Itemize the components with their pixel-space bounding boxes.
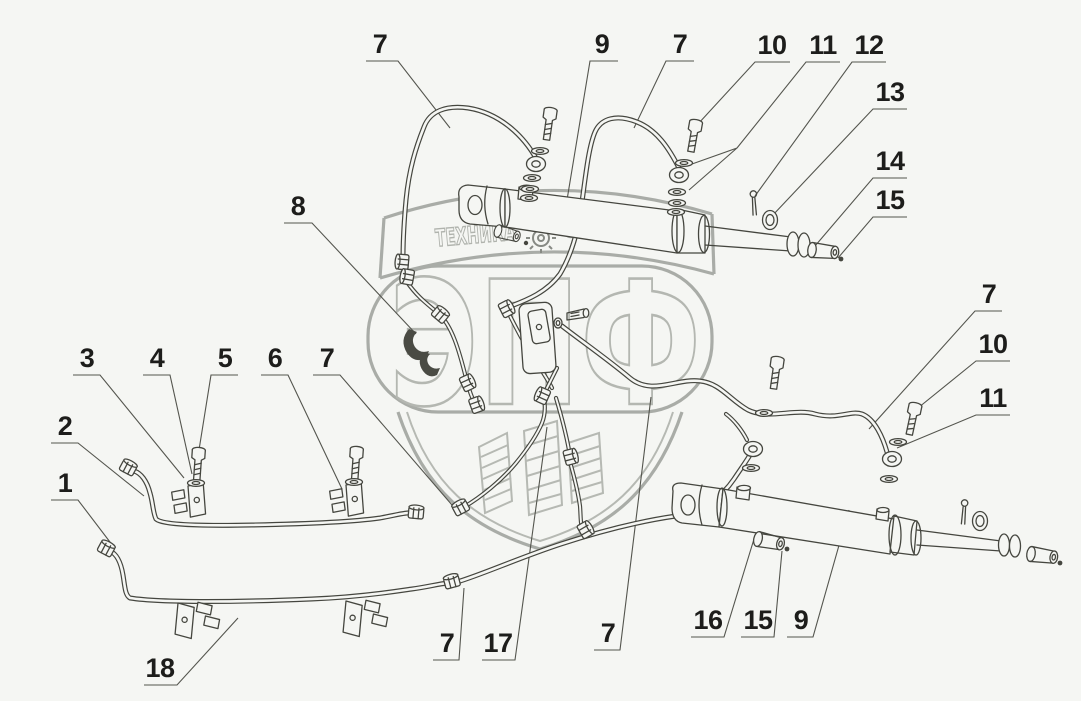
callout-11-a: 11 xyxy=(809,32,837,59)
parts-diagram: ТЕХНИКА ЗАПЧАСТИ ЭПФ xyxy=(0,0,1081,701)
callout-13: 13 xyxy=(875,79,904,106)
left-pipe-hardware xyxy=(97,446,470,639)
callout-7-f: 7 xyxy=(601,620,616,647)
callout-7-a: 7 xyxy=(373,31,388,58)
callout-17: 17 xyxy=(483,630,512,657)
callout-15-a: 15 xyxy=(875,187,904,214)
callout-7-d: 7 xyxy=(320,345,335,372)
right-pipe-hardware xyxy=(743,356,923,483)
callout-2: 2 xyxy=(58,413,73,440)
callout-9-b: 9 xyxy=(794,607,809,634)
callout-9-a: 9 xyxy=(595,31,610,58)
lower-cylinder xyxy=(672,483,1021,557)
callout-7-b: 7 xyxy=(673,31,688,58)
callout-11-b: 11 xyxy=(979,385,1007,412)
callout-3: 3 xyxy=(80,345,95,372)
callout-16: 16 xyxy=(693,607,722,634)
callout-18: 18 xyxy=(145,655,174,682)
callout-15-b: 15 xyxy=(743,607,772,634)
callout-10-b: 10 xyxy=(978,331,1007,358)
callout-14: 14 xyxy=(875,148,904,175)
callout-4: 4 xyxy=(150,345,165,372)
callout-8: 8 xyxy=(291,193,306,220)
callout-6: 6 xyxy=(268,345,283,372)
callout-7-c: 7 xyxy=(982,281,997,308)
callout-12: 12 xyxy=(854,32,883,59)
callout-10-a: 10 xyxy=(757,32,786,59)
callout-5: 5 xyxy=(218,345,233,372)
callout-7-e: 7 xyxy=(440,630,455,657)
callout-1: 1 xyxy=(58,470,73,497)
